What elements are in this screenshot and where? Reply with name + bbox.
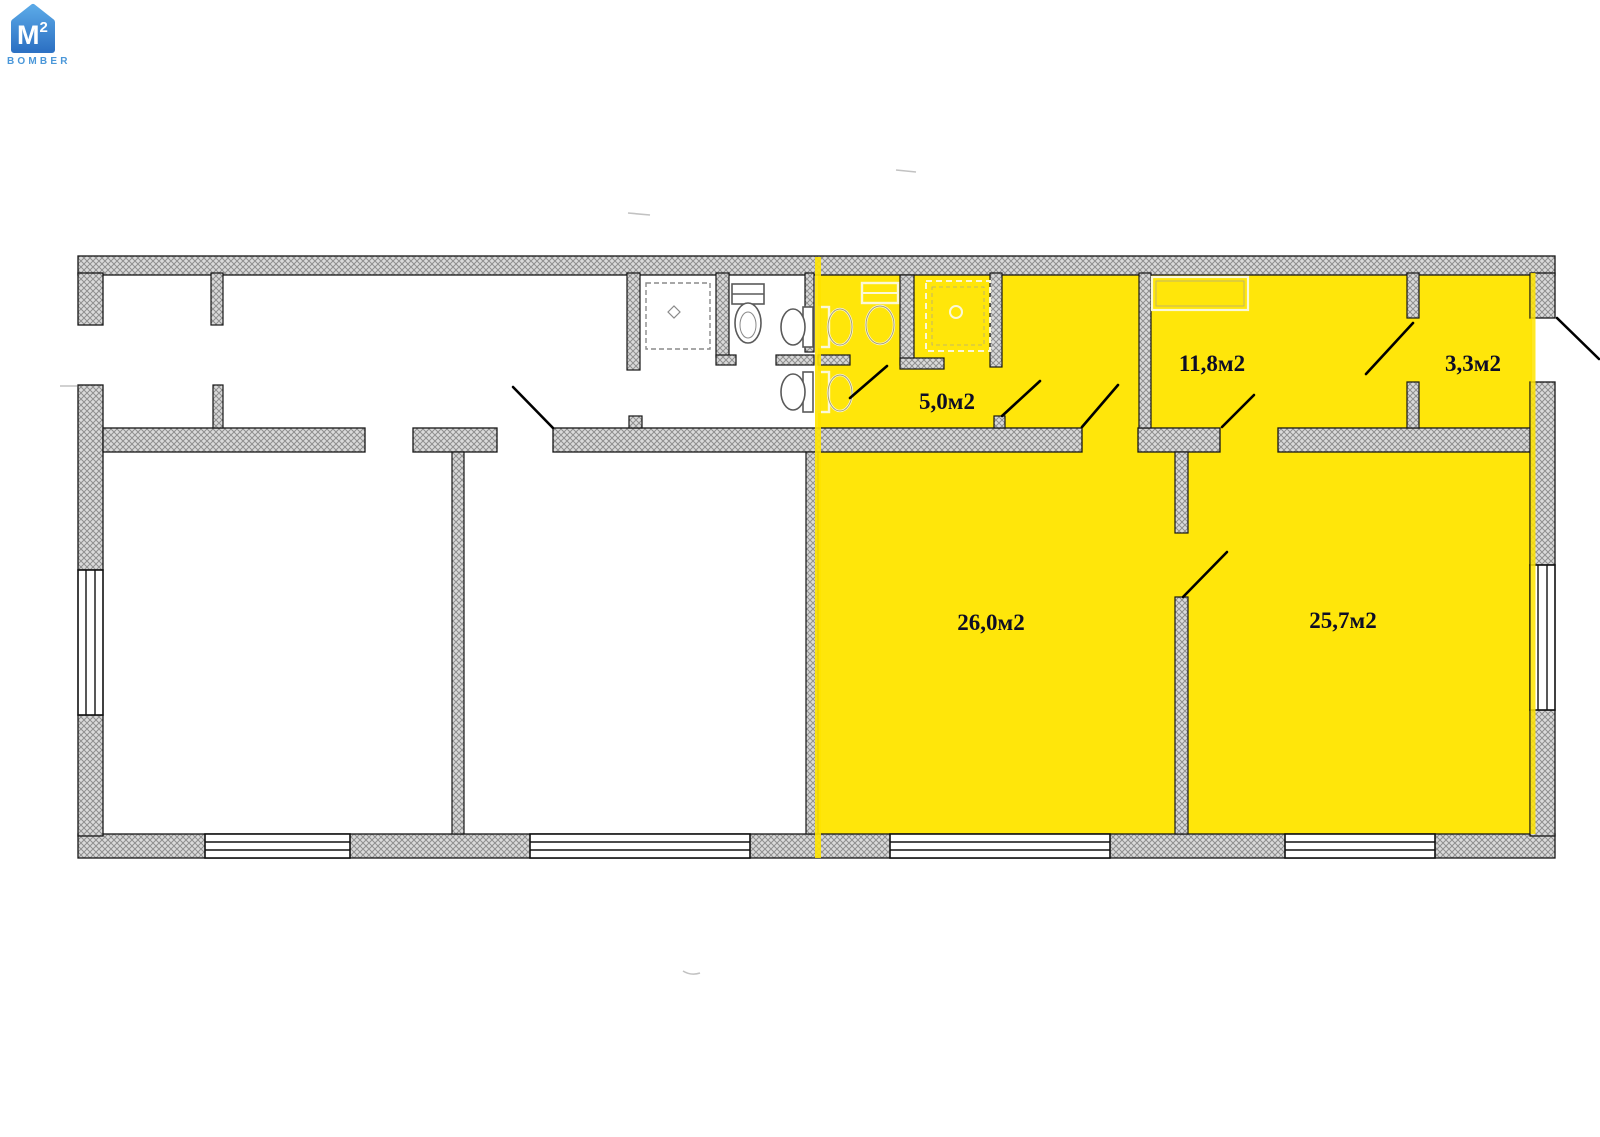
- wc-partition-stub: [994, 416, 1005, 428]
- window-bottom-4: [1285, 834, 1435, 858]
- toilet-fixture: [781, 372, 813, 412]
- toilet-fixture: [781, 307, 813, 347]
- wc-partition-stub: [716, 355, 736, 365]
- wc-partition-stub: [818, 355, 850, 365]
- room-divider-wall: [1175, 597, 1188, 834]
- wc-partition: [716, 273, 729, 357]
- corridor-wall-segment: [103, 428, 365, 452]
- room-area-label: 11,8м2: [1179, 351, 1245, 376]
- wc-partition: [900, 275, 914, 365]
- window-bottom-3: [890, 834, 1110, 858]
- shower-fixture: [646, 283, 710, 349]
- wc-partition-stub: [900, 358, 944, 369]
- corridor-wall-segment: [413, 428, 497, 452]
- wc-partition: [627, 273, 640, 370]
- window-left: [78, 570, 103, 715]
- room-area-label: 26,0м2: [957, 610, 1024, 635]
- corridor-wall-segment: [1138, 428, 1220, 452]
- scan-speck: [628, 213, 650, 215]
- wall-stub: [1407, 273, 1419, 318]
- wall-stub: [211, 273, 223, 325]
- room-divider-wall: [452, 452, 464, 834]
- window-bottom-1: [205, 834, 350, 858]
- wall-stub: [1407, 382, 1419, 428]
- room-divider-wall: [1175, 452, 1188, 533]
- wc-partition-stub: [629, 416, 642, 428]
- room-area-label: 3,3м2: [1445, 351, 1501, 376]
- wc-partition: [990, 273, 1002, 367]
- floor-plan-canvas: M2 BOMBER: [0, 0, 1600, 1137]
- wc-partition: [1139, 273, 1151, 428]
- door-swing-entrance: [1557, 318, 1599, 359]
- left-wall-upper: [78, 273, 103, 325]
- logo-brand-text: BOMBER: [7, 56, 71, 67]
- room-area-label: 5,0м2: [919, 389, 975, 414]
- door-swing: [513, 387, 553, 428]
- window-bottom-2: [530, 834, 750, 858]
- room-area-label: 25,7м2: [1309, 608, 1376, 633]
- left-wall-lower: [78, 715, 103, 836]
- toilet-fixture: [732, 284, 764, 343]
- left-wall-middle: [78, 385, 103, 570]
- wall-stub: [213, 385, 223, 428]
- wc-partition-stub: [776, 355, 814, 365]
- brand-logo: M2 BOMBER: [7, 7, 71, 67]
- scan-speck: [896, 170, 916, 172]
- corridor-wall-segment: [1278, 428, 1530, 452]
- scan-speck: [683, 971, 700, 974]
